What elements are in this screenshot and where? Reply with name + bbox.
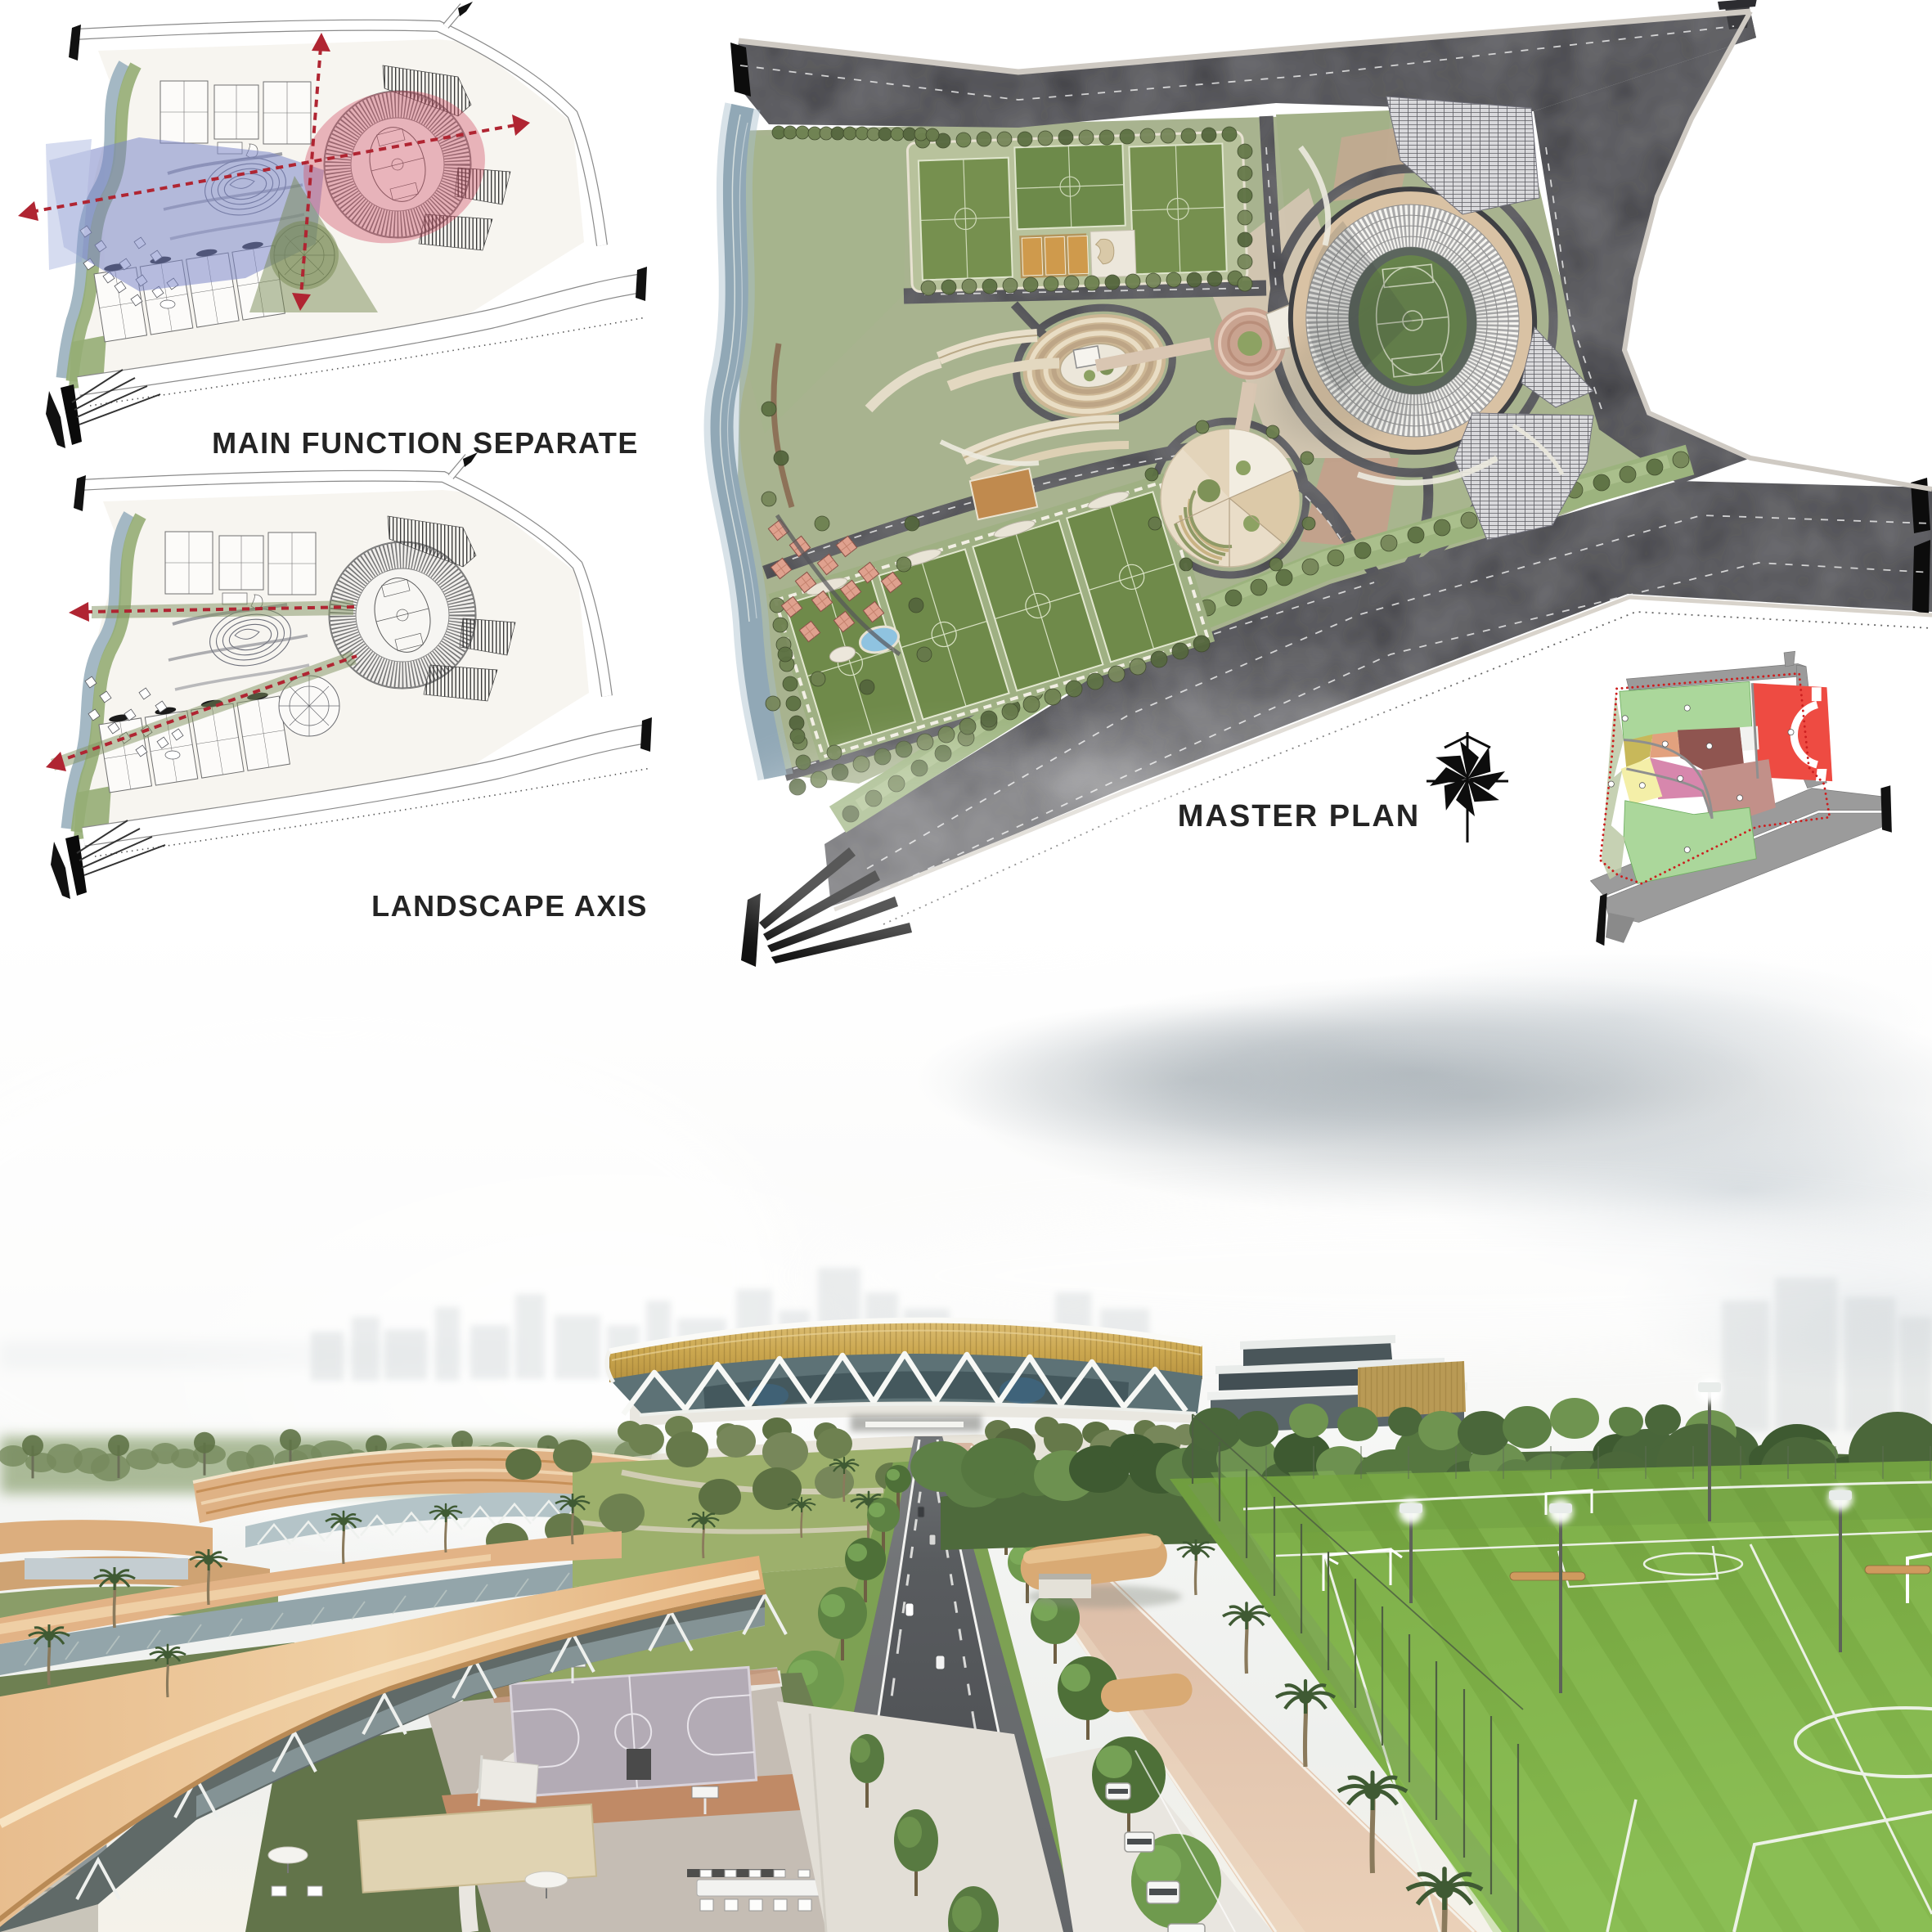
svg-text:MASTER PLAN: MASTER PLAN xyxy=(1178,799,1420,833)
svg-text:LANDSCAPE AXIS: LANDSCAPE AXIS xyxy=(371,889,648,923)
svg-text:MAIN FUNCTION SEPARATE: MAIN FUNCTION SEPARATE xyxy=(212,426,639,460)
